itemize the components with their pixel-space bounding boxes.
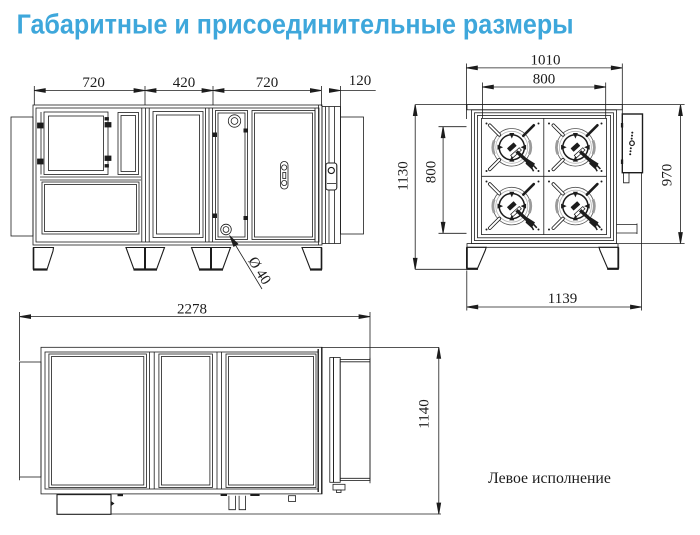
- svg-text:1139: 1139: [548, 291, 577, 307]
- svg-text:720: 720: [82, 75, 105, 91]
- svg-text:Ø 40: Ø 40: [244, 254, 273, 288]
- svg-text:Габаритные и присоединительные: Габаритные и присоединительные размеры: [17, 9, 574, 40]
- svg-text:1010: 1010: [531, 53, 561, 69]
- svg-text:800: 800: [533, 72, 556, 88]
- svg-text:800: 800: [423, 161, 439, 184]
- svg-text:1140: 1140: [417, 399, 433, 428]
- svg-text:1130: 1130: [396, 161, 412, 190]
- svg-text:970: 970: [660, 164, 676, 187]
- svg-text:120: 120: [349, 73, 372, 89]
- svg-text:2278: 2278: [177, 302, 207, 318]
- svg-text:420: 420: [173, 75, 196, 91]
- svg-text:Левое исполнение: Левое исполнение: [488, 470, 611, 487]
- svg-text:720: 720: [256, 75, 279, 91]
